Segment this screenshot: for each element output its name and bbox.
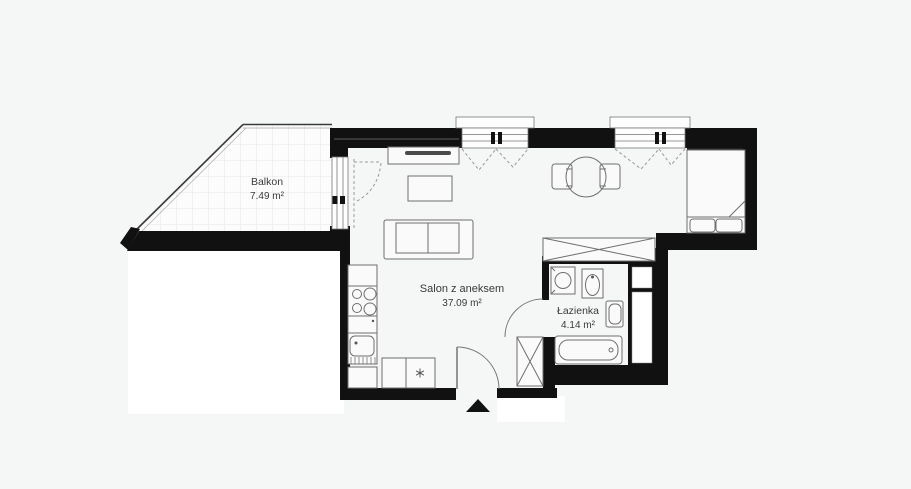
adjacent-unit-area (128, 251, 344, 414)
toilet (606, 301, 623, 327)
pillow (690, 219, 715, 232)
balcony-door (332, 157, 381, 229)
bathtub (555, 336, 622, 364)
dining-chair (600, 164, 620, 189)
window-opening-indicator (462, 149, 528, 170)
room-label-balkon: Balkon (251, 176, 283, 188)
window-1 (456, 117, 534, 170)
window-2 (610, 117, 690, 169)
wardrobe (543, 238, 655, 261)
tv-icon (405, 151, 451, 155)
base-cabinet (382, 358, 406, 388)
room-area-salon: 37.09 m² (442, 298, 482, 309)
washbasin (582, 269, 603, 298)
floor-plan: Balkon 7.49 m² Salon z aneksem 37.09 m² … (0, 0, 911, 489)
hall-closet (517, 337, 543, 386)
room-label-salon: Salon z aneksem (420, 283, 504, 295)
bed (687, 150, 745, 233)
room-label-lazienka: Łazienka (557, 305, 599, 317)
shaft-niche (632, 267, 652, 288)
door-swing-arc (457, 347, 499, 389)
faucet-icon (355, 342, 358, 345)
entrance-arrow-icon (466, 399, 490, 412)
faucet-icon (591, 276, 594, 279)
coffee-table (408, 176, 452, 201)
corner-cabinet (348, 367, 377, 388)
room-area-lazienka: 4.14 m² (561, 320, 596, 331)
tv-sideboard (388, 147, 459, 164)
sofa (384, 220, 473, 259)
window-opening-indicator (615, 149, 685, 169)
door-swing-arc (355, 163, 381, 202)
entrance-door (457, 347, 499, 389)
entry-landing-area (497, 396, 565, 422)
bathroom-door (505, 299, 543, 337)
floor-plan-svg: Balkon 7.49 m² Salon z aneksem 37.09 m² … (0, 0, 911, 489)
dining-chair (552, 164, 572, 189)
fridge (406, 358, 435, 388)
pillow (716, 219, 742, 232)
balcony (135, 125, 332, 233)
washing-machine (551, 267, 575, 294)
drainer (351, 357, 375, 364)
room-area-balkon: 7.49 m² (250, 191, 285, 202)
shaft-niche (632, 292, 652, 363)
dining-set (552, 157, 620, 197)
